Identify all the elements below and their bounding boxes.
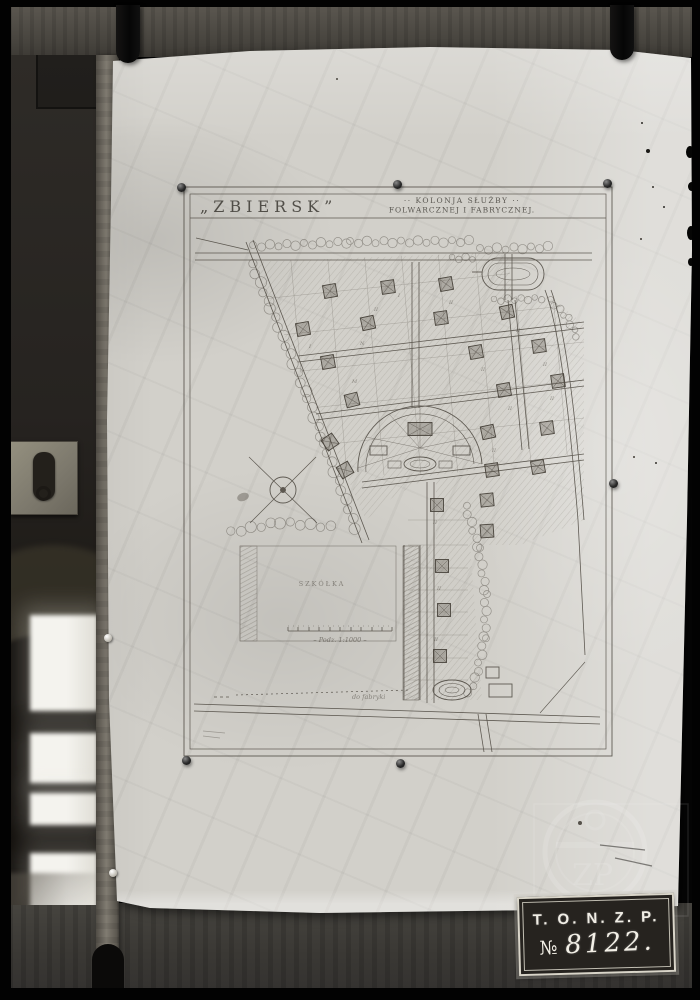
scale-bar xyxy=(288,626,392,631)
stamp-organization: T. O. N. Z. P. xyxy=(532,908,659,929)
plot-building xyxy=(434,311,449,326)
dust-specks xyxy=(641,122,643,124)
photo-border-left xyxy=(0,0,11,1000)
plot-building xyxy=(496,382,511,397)
tree-row xyxy=(476,241,552,254)
archival-photograph: IIIIIIIIMIIIIIIIIIIIIIIIIN „ZBIERSK” ·· … xyxy=(0,0,700,1000)
plot-building xyxy=(434,650,447,663)
plot-building xyxy=(344,392,360,408)
stamp-inventory-number: 8122. xyxy=(564,926,655,960)
photo-border-bottom xyxy=(0,988,700,1000)
plot-building xyxy=(530,459,545,474)
plot-building xyxy=(408,423,432,436)
plan-title: „ZBIERSK” xyxy=(200,197,337,216)
plot-building xyxy=(360,315,375,330)
plot-building xyxy=(295,321,310,336)
svg-text:ZP: ZP xyxy=(572,858,613,893)
nursery-label: SZKÓŁKA xyxy=(299,579,346,588)
hanging-strap-left xyxy=(116,5,140,63)
plot-building xyxy=(431,499,444,512)
hanging-strap-right xyxy=(610,5,634,60)
plot-building xyxy=(468,344,483,359)
push-pin xyxy=(393,180,402,189)
plot-numeral: N xyxy=(359,341,365,347)
plot-building xyxy=(436,560,449,573)
compass-rose xyxy=(236,457,317,523)
push-pin xyxy=(603,179,612,188)
white-pin xyxy=(104,634,112,642)
nursery-field xyxy=(240,546,396,641)
plot-building xyxy=(438,604,451,617)
photo-border-right xyxy=(692,0,700,1000)
white-pin xyxy=(109,869,117,877)
plot-building xyxy=(320,354,335,369)
plot-building xyxy=(480,424,495,439)
scale-label: – Podz. 1:1000 – xyxy=(313,636,366,644)
plot-building xyxy=(322,283,337,298)
plot-building xyxy=(480,493,494,507)
plot-building xyxy=(381,280,396,295)
draughtsman-signature xyxy=(203,731,225,738)
plot-building xyxy=(532,339,547,354)
tree-row xyxy=(249,235,473,251)
stamp-number-row: № 8122. xyxy=(538,926,655,961)
road-annotation: do fabryki xyxy=(352,693,385,701)
push-pin xyxy=(609,479,618,488)
push-pin xyxy=(396,759,405,768)
plot-building xyxy=(485,463,500,478)
stamp-number-sign: № xyxy=(539,937,558,960)
push-pin xyxy=(177,183,186,192)
push-pin xyxy=(182,756,191,765)
plot-building xyxy=(551,374,566,389)
tree-row xyxy=(227,518,336,536)
plan-drawing: IIIIIIIIMIIIIIIIIIIIIIIIIN „ZBIERSK” ·· … xyxy=(0,0,700,1000)
archive-stamp-label: T. O. N. Z. P. № 8122. xyxy=(517,893,676,976)
plot-building xyxy=(499,304,514,319)
plot-numeral: M xyxy=(351,379,358,385)
plan-subtitle-line2: FOLWARCZNEJ I FABRYCZNEJ. xyxy=(389,206,535,215)
plot-building xyxy=(480,524,494,538)
plan-subtitle-line1: ·· KOLONJA SŁUŻBY ·· xyxy=(404,196,520,205)
plot-building xyxy=(540,421,555,436)
plot-building xyxy=(438,276,453,291)
